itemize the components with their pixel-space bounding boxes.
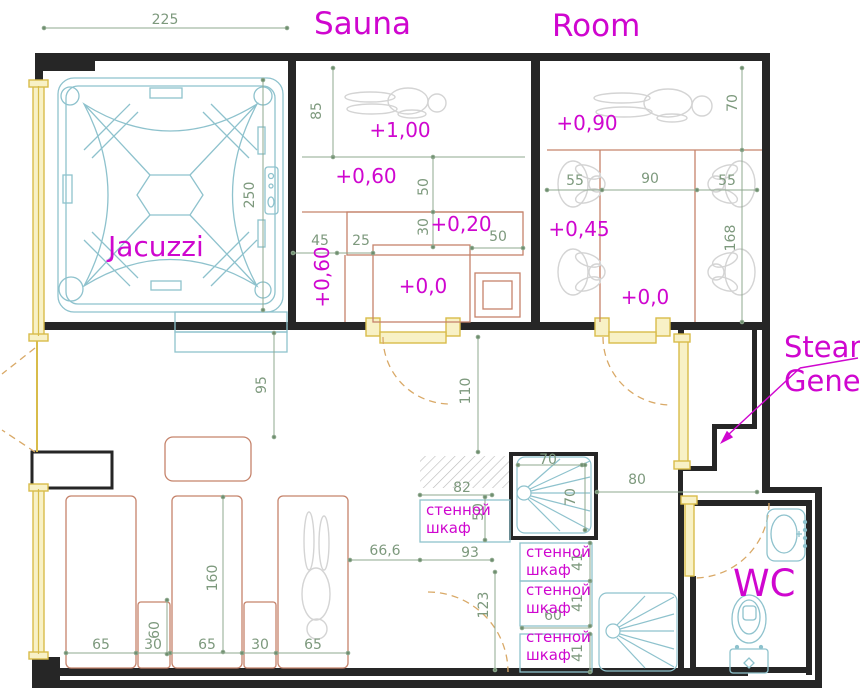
closet-label-line: шкаф (426, 519, 471, 537)
dim-label: 55 (718, 174, 736, 188)
wall-closet-label: стеннойшкаф (426, 501, 491, 537)
dim-label: 70 (564, 488, 578, 506)
closet-label-line: стенной (526, 543, 591, 561)
dim-label: 225 (152, 13, 179, 27)
jacuzzi-step (175, 312, 287, 352)
dim-label: 30 (417, 218, 431, 236)
wc-room-label: WC (733, 564, 795, 604)
dim-label: 25 (352, 234, 370, 248)
coffee-table (165, 437, 251, 481)
dim-label: 160 (206, 565, 220, 592)
dim-label: 60 (148, 621, 162, 639)
dim-label: 30 (251, 638, 269, 652)
person-seated-icon (558, 249, 605, 295)
floor-plan: Jacuzzi Sauna Steam Room WC Steam Gene +… (0, 0, 860, 700)
steam-generator-label-line1: Steam (784, 332, 860, 363)
level-label: +0,60 (312, 246, 332, 307)
dim-label: 110 (459, 378, 473, 405)
level-label: +0,45 (548, 219, 609, 239)
shower-top-icon (517, 457, 591, 533)
closet-label-line: стенной (526, 628, 591, 646)
closet-label-line: шкаф (526, 561, 571, 579)
dim-label: 95 (255, 376, 269, 394)
side-table (244, 602, 276, 668)
wall-closet-label: стеннойшкаф (526, 543, 591, 579)
steam-room-label-line1: Steam (552, 0, 652, 3)
sauna-heater-icon (475, 273, 520, 317)
steam-room-label-line2: Room (552, 10, 640, 43)
person-lying-icon (302, 512, 330, 639)
level-label: +0,90 (556, 113, 617, 133)
dim-label: 65 (198, 638, 216, 652)
closet-label-line: шкаф (526, 599, 571, 617)
door-swing-arcs (2, 337, 769, 672)
dim-label: 70 (539, 453, 557, 467)
dim-label: 90 (641, 172, 659, 186)
dim-label: 93 (461, 546, 479, 560)
walls (32, 53, 822, 688)
level-label: +0,0 (621, 287, 670, 307)
dim-label: 82 (453, 481, 471, 495)
level-label: +0,20 (430, 214, 491, 234)
wall-closet-label: стеннойшкаф (526, 628, 591, 664)
wall-closet-label: стеннойшкаф (526, 581, 591, 617)
dim-label: 250 (243, 182, 257, 209)
dim-label: 168 (724, 225, 738, 252)
toilet-icon (730, 595, 768, 673)
dim-label: 70 (726, 94, 740, 112)
dim-label: 55 (566, 174, 584, 188)
closet-label-line: шкаф (526, 646, 571, 664)
dim-label: 50 (489, 230, 507, 244)
person-seated-icon (708, 249, 755, 295)
sink-icon (767, 509, 807, 561)
person-lying-icon (345, 88, 446, 118)
dim-label: 80 (628, 473, 646, 487)
dim-label: 50 (417, 178, 431, 196)
dim-label: 45 (311, 234, 329, 248)
level-label: +1,00 (369, 120, 430, 140)
dim-label: 30 (144, 638, 162, 652)
dim-label: 123 (477, 592, 491, 619)
jacuzzi-room-label: Jacuzzi (108, 232, 204, 262)
dim-label: 85 (310, 102, 324, 120)
wall-pier (32, 452, 112, 488)
dim-label: 65 (92, 638, 110, 652)
dim-label: 66,6 (369, 544, 400, 558)
level-label: +0,60 (335, 166, 396, 186)
dim-label: 65 (304, 638, 322, 652)
closet-label-line: стенной (426, 501, 491, 519)
sauna-room-label: Sauna (314, 8, 411, 41)
closet-label-line: стенной (526, 581, 591, 599)
level-label: +0,0 (399, 276, 448, 296)
steam-generator-label-line2: Gene (784, 366, 860, 397)
shower-bottom-icon (599, 593, 677, 671)
